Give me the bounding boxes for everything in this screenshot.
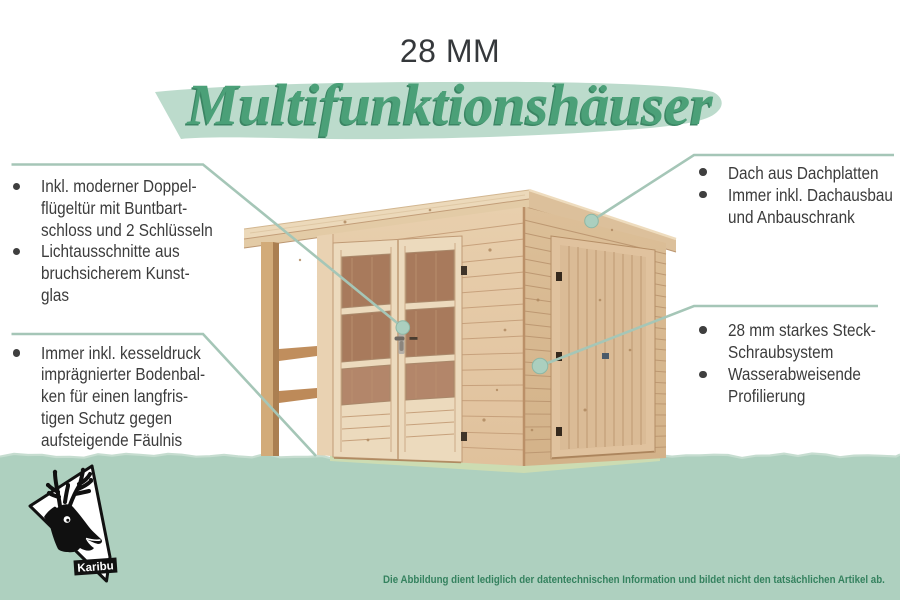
svg-text:Karibu: Karibu (77, 560, 114, 575)
